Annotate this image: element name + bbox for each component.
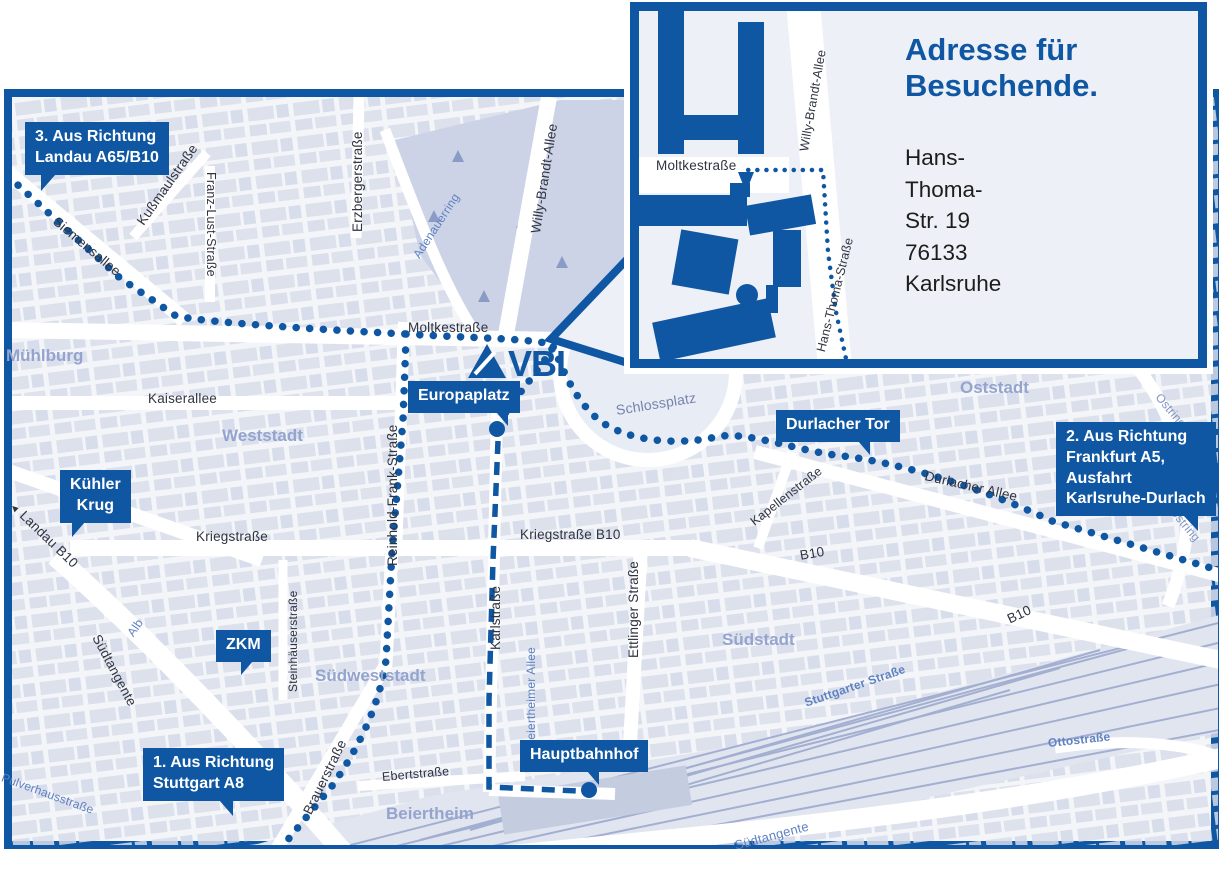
area-beiertheim: Beiertheim: [386, 804, 474, 824]
street-karlstrasse: Karlstraße: [488, 586, 503, 650]
street-erzbergerstrasse: Erzbergerstraße: [350, 131, 365, 232]
callout-europaplatz: Europaplatz: [408, 381, 520, 413]
callout-tail: [219, 800, 233, 816]
callout-tail: [858, 441, 870, 455]
area-weststadt: Weststadt: [222, 426, 303, 446]
map-page: VBL Moltkestraße Kaiserallee Kriegstraße…: [0, 0, 1230, 874]
area-muehlburg: Mühlburg: [6, 346, 83, 366]
street-moltkestrasse: Moltkestraße: [408, 320, 488, 335]
inset-heading: Adresse für Besuchende.: [905, 32, 1098, 104]
street-reinhold-frank-strasse: Reinhold-Frank-Straße: [385, 424, 400, 566]
callout-route1-stuttgart: 1. Aus Richtung Stuttgart A8: [143, 748, 284, 801]
callout-hauptbahnhof: Hauptbahnhof: [520, 740, 648, 772]
area-oststadt: Oststadt: [960, 378, 1029, 398]
street-beiertheimer-allee: Beiertheimer Allee: [524, 647, 538, 748]
callout-tail: [41, 174, 56, 191]
vbl-logo: VBL: [466, 340, 566, 382]
callout-route2-frankfurt: 2. Aus Richtung Frankfurt A5, Ausfahrt K…: [1056, 422, 1216, 516]
callout-tail: [496, 412, 508, 426]
callout-zkm: ZKM: [216, 630, 271, 662]
callout-tail: [241, 661, 253, 675]
callout-tail: [587, 771, 599, 785]
inset-street-moltkestrasse: Moltkestraße: [656, 158, 736, 173]
street-franz-lust-strasse: Franz-Lust-Straße: [204, 172, 218, 277]
callout-kuehler-krug: Kühler Krug: [60, 470, 131, 523]
area-suedstadt: Südstadt: [722, 630, 795, 650]
street-kaiserallee: Kaiserallee: [148, 391, 217, 406]
callout-durlacher-tor: Durlacher Tor: [776, 410, 900, 442]
street-kriegstrasse-b10: Kriegstraße B10: [520, 527, 621, 542]
street-ettlinger-strasse: Ettlinger Straße: [626, 561, 641, 658]
area-suedweststadt: Südweststadt: [315, 666, 426, 686]
callout-route3-landau: 3. Aus Richtung Landau A65/B10: [25, 122, 169, 175]
vbl-logo-text: VBL: [508, 343, 566, 382]
callout-tail: [1183, 515, 1198, 531]
inset-address: Hans-Thoma-Str. 19 76133 Karlsruhe: [905, 142, 1001, 300]
street-kriegstrasse: Kriegstraße: [196, 529, 268, 544]
callout-tail: [72, 522, 85, 537]
street-steinhaeuserstrasse: Steinhäuserstraße: [286, 591, 300, 692]
